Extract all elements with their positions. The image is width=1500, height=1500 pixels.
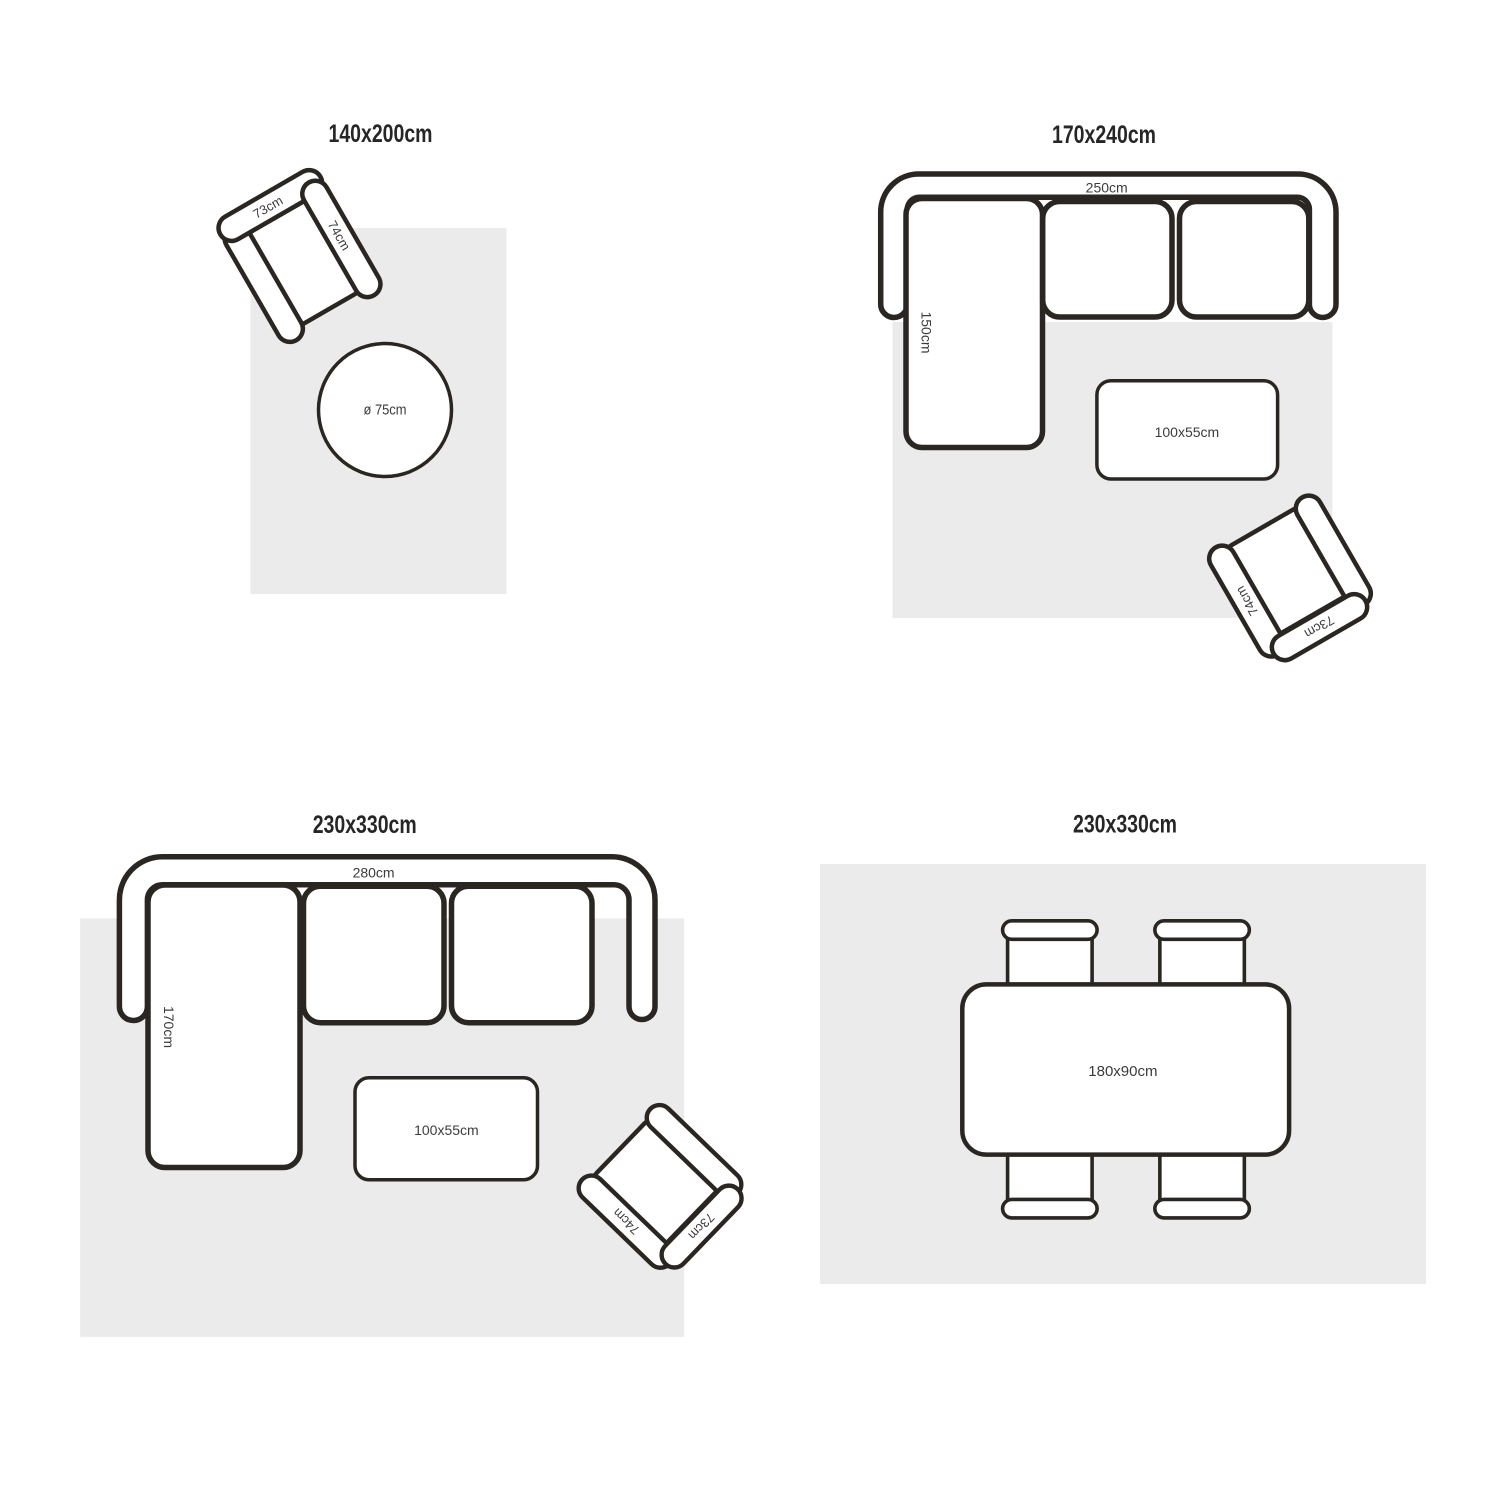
svg-text:250cm: 250cm (1086, 179, 1128, 195)
svg-text:280cm: 280cm (353, 865, 395, 881)
svg-text:170cm: 170cm (161, 1006, 177, 1048)
svg-text:180x90cm: 180x90cm (1088, 1063, 1157, 1080)
svg-text:230x330cm: 230x330cm (1073, 811, 1177, 839)
svg-text:140x200cm: 140x200cm (329, 120, 433, 148)
svg-text:ø 75cm: ø 75cm (364, 402, 407, 419)
svg-text:170x240cm: 170x240cm (1052, 121, 1156, 149)
svg-text:100x55cm: 100x55cm (414, 1122, 479, 1138)
svg-text:100x55cm: 100x55cm (1155, 424, 1220, 440)
svg-text:230x330cm: 230x330cm (313, 811, 417, 839)
svg-text:150cm: 150cm (919, 311, 935, 353)
